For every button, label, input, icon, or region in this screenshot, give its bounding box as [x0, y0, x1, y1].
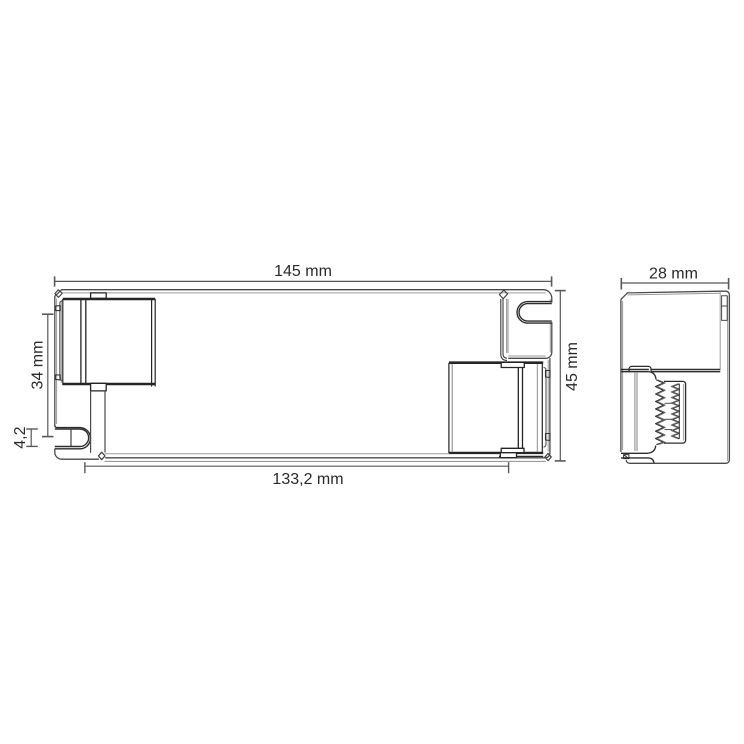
svg-text:28 mm: 28 mm [649, 265, 698, 282]
svg-text:45 mm: 45 mm [564, 342, 581, 391]
svg-text:133,2 mm: 133,2 mm [272, 471, 343, 488]
svg-text:145 mm: 145 mm [274, 263, 332, 280]
svg-text:4,2: 4,2 [12, 426, 29, 448]
svg-text:34 mm: 34 mm [29, 341, 46, 390]
